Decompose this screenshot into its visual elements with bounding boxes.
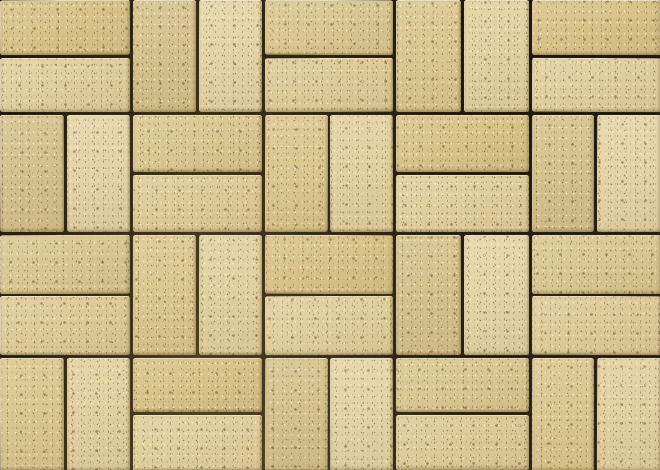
- paver-brick: [198, 234, 261, 354]
- paver-brick: [264, 234, 392, 293]
- paver-brick: [0, 0, 130, 55]
- paver-brick: [464, 235, 529, 355]
- paver-brick: [0, 58, 130, 112]
- paver-brick: [264, 58, 392, 112]
- paver-brick: [596, 114, 660, 231]
- paver-brick: [67, 357, 130, 470]
- paver-brick: [0, 234, 130, 293]
- paver-brick: [596, 357, 660, 470]
- paver-brick: [133, 358, 262, 412]
- paver-brick: [264, 296, 392, 355]
- paver-brick: [531, 58, 660, 112]
- paver-brick: [133, 115, 262, 172]
- paver-brick: [531, 114, 593, 231]
- pavement-photo: [0, 0, 660, 470]
- paver-brick: [198, 0, 261, 112]
- paver-brick: [464, 0, 529, 112]
- paver-brick: [395, 114, 528, 171]
- paver-brick: [0, 357, 64, 470]
- paver-brick: [67, 114, 130, 231]
- paver-brick: [132, 414, 261, 470]
- paver-brick: [264, 357, 327, 470]
- paver-brick: [330, 357, 393, 470]
- paver-brick: [395, 234, 460, 354]
- paver-brick: [395, 0, 460, 112]
- paver-brick: [264, 0, 392, 55]
- pavement: [0, 0, 660, 470]
- paver-brick: [330, 114, 393, 231]
- paver-brick: [0, 296, 130, 355]
- paver-brick: [0, 114, 64, 231]
- paver-brick: [531, 0, 660, 55]
- paver-brick: [396, 175, 529, 232]
- paver-brick: [132, 174, 261, 231]
- paver-brick: [531, 357, 593, 470]
- paver-brick: [395, 357, 528, 411]
- paver-brick: [264, 114, 327, 231]
- paver-brick: [531, 296, 660, 355]
- paver-brick: [133, 0, 196, 112]
- paver-brick: [133, 235, 196, 355]
- paver-brick: [396, 415, 529, 470]
- paver-brick: [531, 234, 660, 293]
